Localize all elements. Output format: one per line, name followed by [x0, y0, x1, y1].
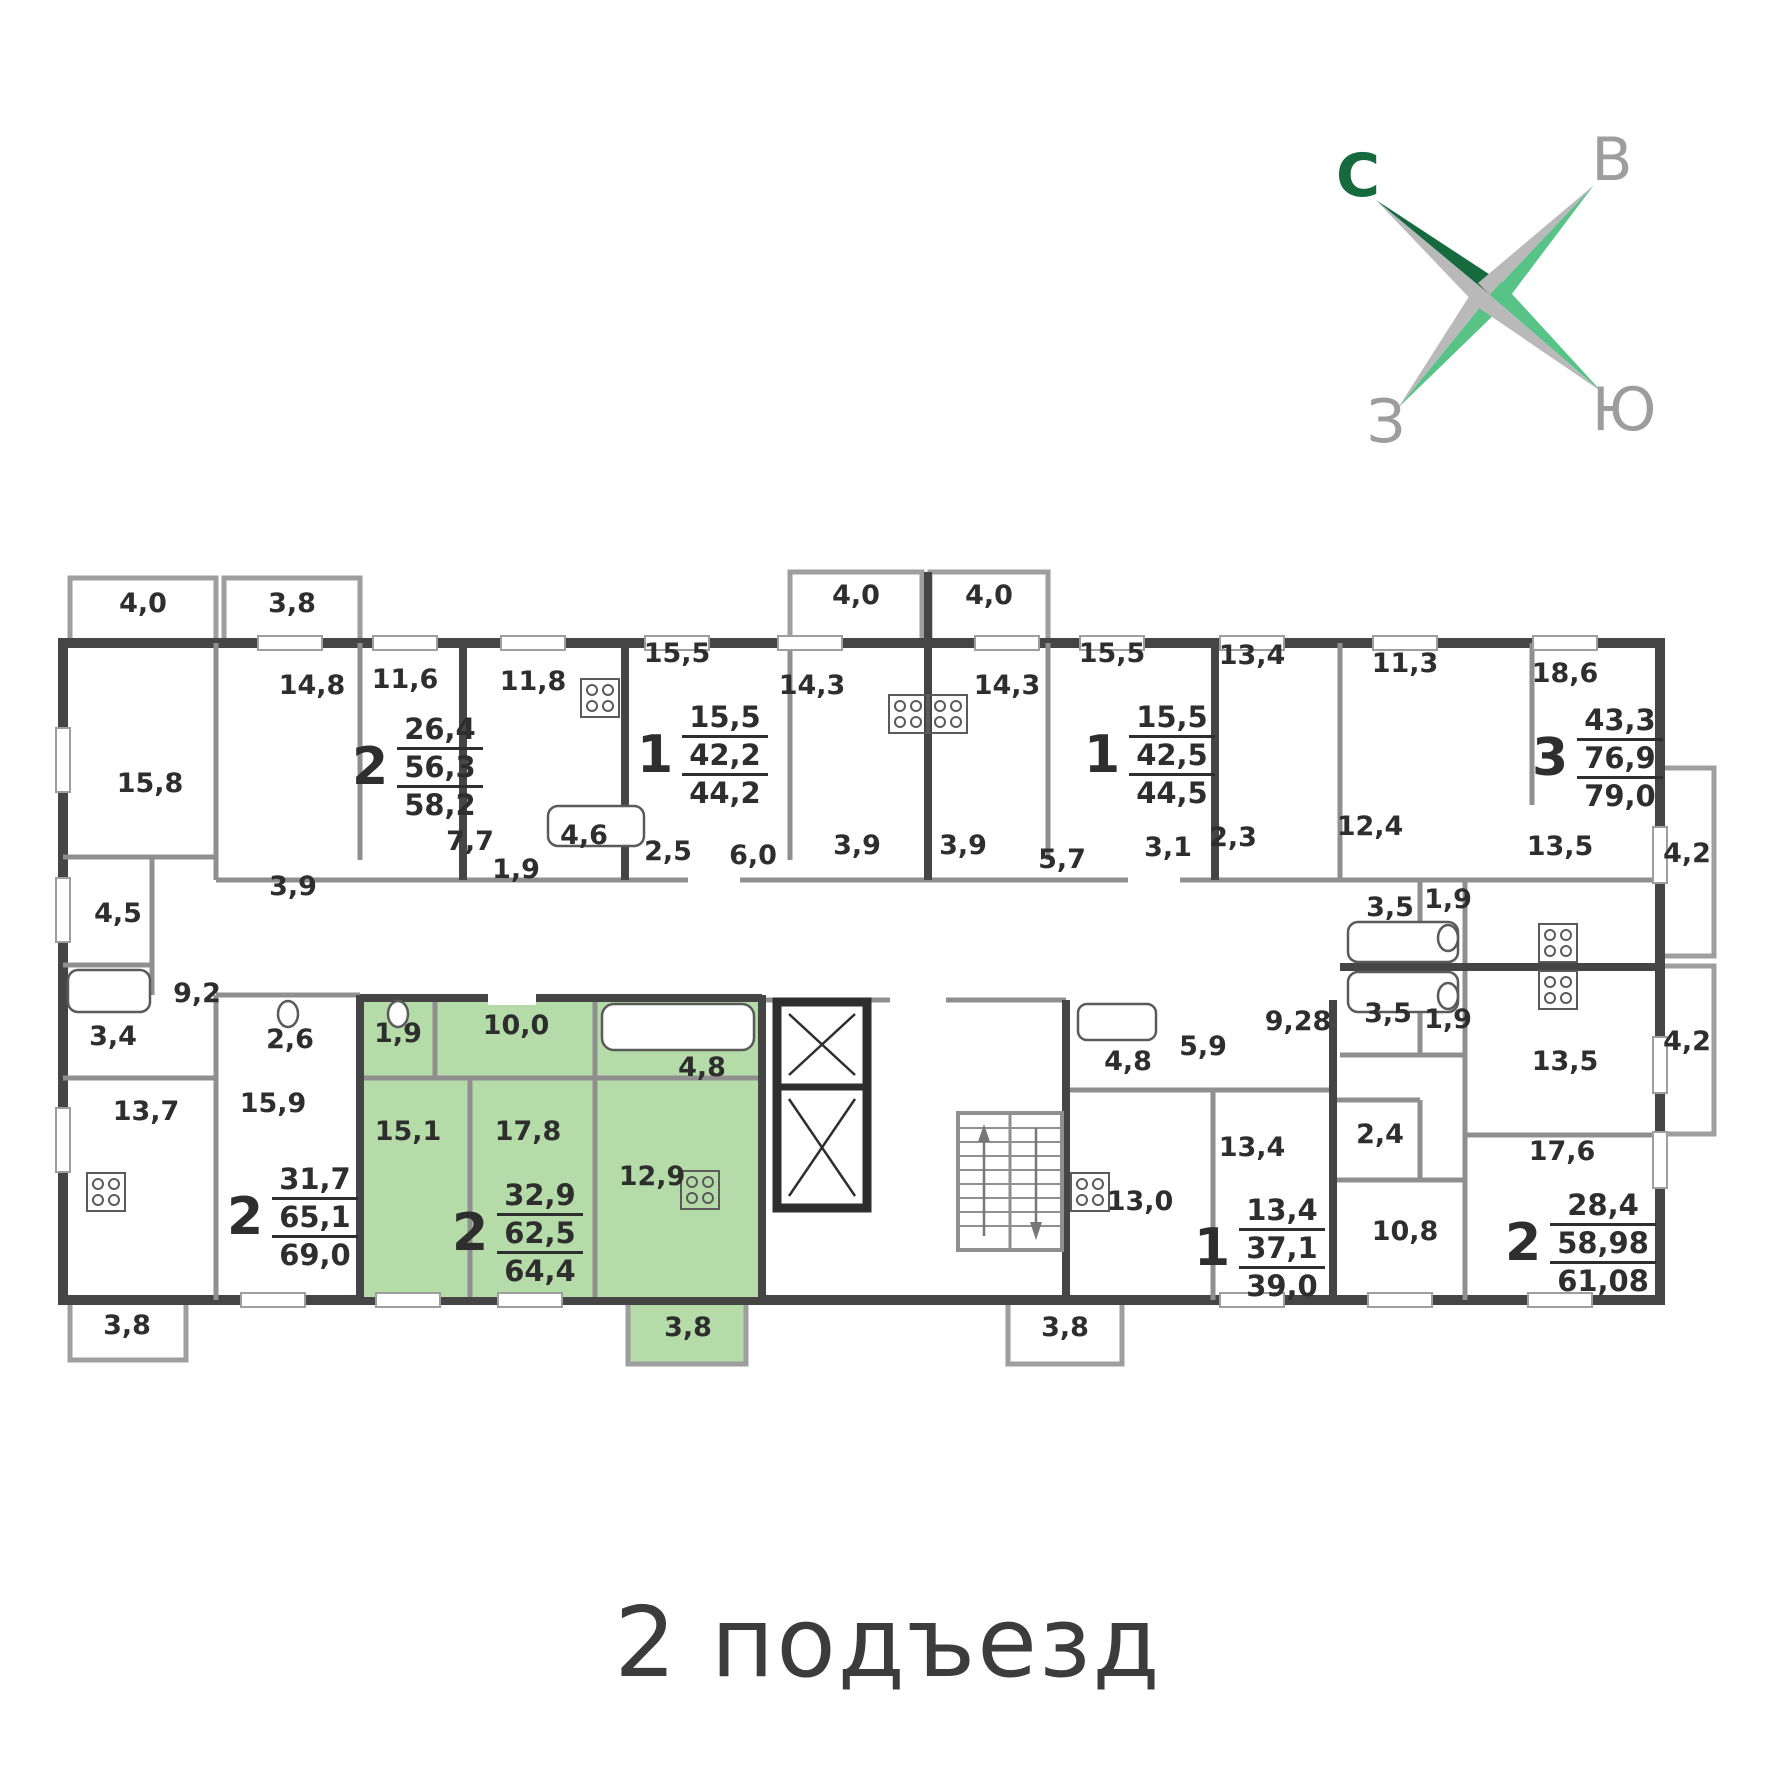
room-area-label: 13,5: [1527, 831, 1594, 862]
room-area-label: 5,9: [1179, 1031, 1227, 1062]
room-area-label: 10,0: [483, 1010, 550, 1041]
compass-north-letter: С: [1336, 141, 1380, 211]
page-title: 2 подъезд: [614, 1586, 1161, 1699]
compass-arm-south: [1490, 282, 1602, 392]
room-area-label: 4,5: [94, 898, 142, 929]
room-area-label: 15,9: [240, 1088, 307, 1119]
room-area-label: 2,4: [1356, 1119, 1404, 1150]
room-area-label: 14,3: [779, 670, 846, 701]
room-area-label: 1,9: [374, 1018, 422, 1049]
room-area-label: 13,0: [1107, 1186, 1174, 1217]
room-area-label: 14,3: [974, 670, 1041, 701]
room-area-label: 13,4: [1219, 1132, 1286, 1163]
toilet-icon: [1438, 925, 1458, 951]
room-area-label: 18,6: [1532, 658, 1599, 689]
room-area-label: 2,6: [266, 1024, 314, 1055]
room-area-label: 17,6: [1529, 1136, 1596, 1167]
room-area-label: 3,8: [103, 1310, 151, 1341]
room-area-label: 3,9: [939, 830, 987, 861]
room-area-label: 4,0: [119, 588, 167, 619]
room-area-label: 6,0: [729, 840, 777, 871]
room-area-label: 12,4: [1337, 811, 1404, 842]
room-area-label: 4,2: [1663, 838, 1711, 869]
compass-west-letter: З: [1367, 387, 1405, 457]
room-area-label: 11,3: [1372, 648, 1439, 679]
staircase: [958, 1113, 1062, 1250]
room-area-label: 4,2: [1663, 1026, 1711, 1057]
room-area-label: 3,4: [89, 1021, 137, 1052]
compass-south-letter: Ю: [1592, 375, 1657, 445]
bathtub-icon: [68, 970, 150, 1012]
room-area-label: 9,2: [173, 978, 221, 1009]
room-area-label: 13,7: [113, 1096, 180, 1127]
room-area-label: 13,5: [1532, 1046, 1599, 1077]
room-area-label: 4,6: [560, 820, 608, 851]
room-area-label: 3,5: [1364, 998, 1412, 1029]
room-area-label: 4,0: [965, 580, 1013, 611]
room-area-label: 1,9: [1424, 1004, 1472, 1035]
room-area-label: 4,8: [678, 1052, 726, 1083]
room-area-label: 3,1: [1144, 832, 1192, 863]
room-area-label: 9,28: [1265, 1006, 1332, 1037]
room-area-label: 3,8: [268, 588, 316, 619]
floor-plan-drawing: 4,03,84,04,015,814,811,611,815,514,314,3…: [0, 0, 1776, 1776]
room-area-label: 11,8: [500, 666, 567, 697]
room-area-label: 3,5: [1366, 892, 1414, 923]
room-area-label: 4,8: [1104, 1046, 1152, 1077]
bathtub-icon: [1078, 1004, 1156, 1040]
room-area-label: 1,9: [1424, 884, 1472, 915]
room-area-label: 14,8: [279, 670, 346, 701]
room-area-label: 11,6: [372, 664, 439, 695]
floor-plan-page: 4,03,84,04,015,814,811,611,815,514,314,3…: [0, 0, 1776, 1776]
room-area-label: 10,8: [1372, 1216, 1439, 1247]
room-area-label: 12,9: [619, 1161, 686, 1192]
elevator-shafts: [777, 1002, 867, 1208]
room-area-label: 13,4: [1219, 640, 1286, 671]
room-area-label: 15,1: [375, 1116, 442, 1147]
room-area-label: 17,8: [495, 1116, 562, 1147]
room-area-label: 3,8: [1041, 1312, 1089, 1343]
room-area-label: 1,9: [492, 854, 540, 885]
room-area-label: 3,9: [833, 830, 881, 861]
compass-rose: [1376, 185, 1602, 408]
room-area-label: 15,8: [117, 768, 184, 799]
room-area-label: 3,8: [664, 1312, 712, 1343]
room-area-label: 15,5: [1079, 638, 1146, 669]
room-area-label: 2,3: [1209, 822, 1257, 853]
bathtub-icon: [602, 1004, 754, 1050]
compass-east-letter: В: [1591, 125, 1632, 195]
room-area-label: 3,9: [269, 871, 317, 902]
room-area-label: 15,5: [644, 638, 711, 669]
room-area-label: 7,7: [446, 826, 494, 857]
room-area-label: 2,5: [644, 836, 692, 867]
room-area-label: 4,0: [832, 580, 880, 611]
room-area-label: 5,7: [1038, 844, 1086, 875]
